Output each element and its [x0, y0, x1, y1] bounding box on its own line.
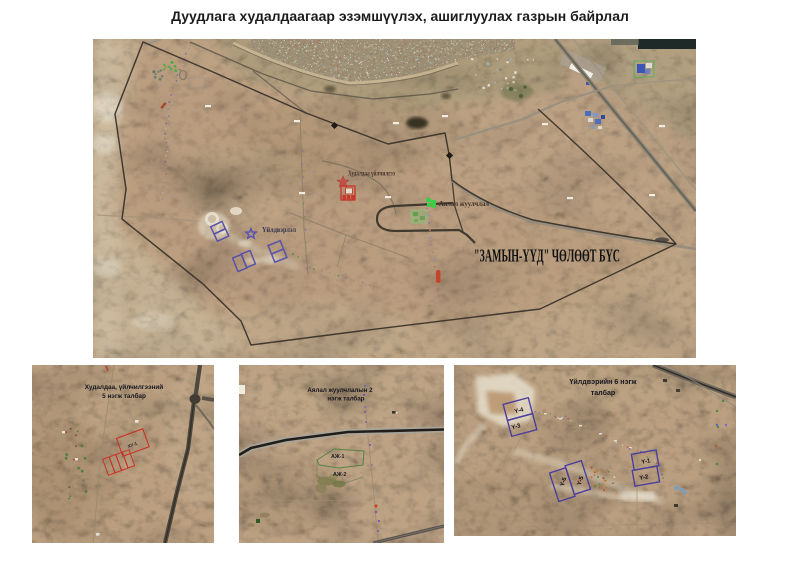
svg-text:АЖ-2: АЖ-2 — [333, 472, 347, 478]
svg-text:нэгж талбар: нэгж талбар — [327, 396, 364, 403]
svg-text:Аялал жуулчлалын 2: Аялал жуулчлалын 2 — [307, 387, 373, 394]
svg-text:Үйлдвэрийн 6 нэгж: Үйлдвэрийн 6 нэгж — [569, 378, 637, 386]
svg-text:Аялал жуулчлал: Аялал жуулчлал — [439, 200, 489, 208]
svg-text:Худалдаа, үйлчилгээний: Худалдаа, үйлчилгээний — [85, 383, 164, 391]
svg-text:5 нэгж талбар: 5 нэгж талбар — [102, 392, 146, 400]
svg-text:АЖ-1: АЖ-1 — [331, 454, 345, 460]
svg-text:Худалдаа үйлчилгээ: Худалдаа үйлчилгээ — [348, 170, 395, 178]
svg-text:Үйлдвэрлэл: Үйлдвэрлэл — [262, 226, 296, 234]
svg-text:"ЗАМЫН-ҮҮД" ЧӨЛӨӨТ БҮС: "ЗАМЫН-ҮҮД" ЧӨЛӨӨТ БҮС — [474, 246, 620, 266]
svg-text:талбар: талбар — [591, 389, 616, 397]
